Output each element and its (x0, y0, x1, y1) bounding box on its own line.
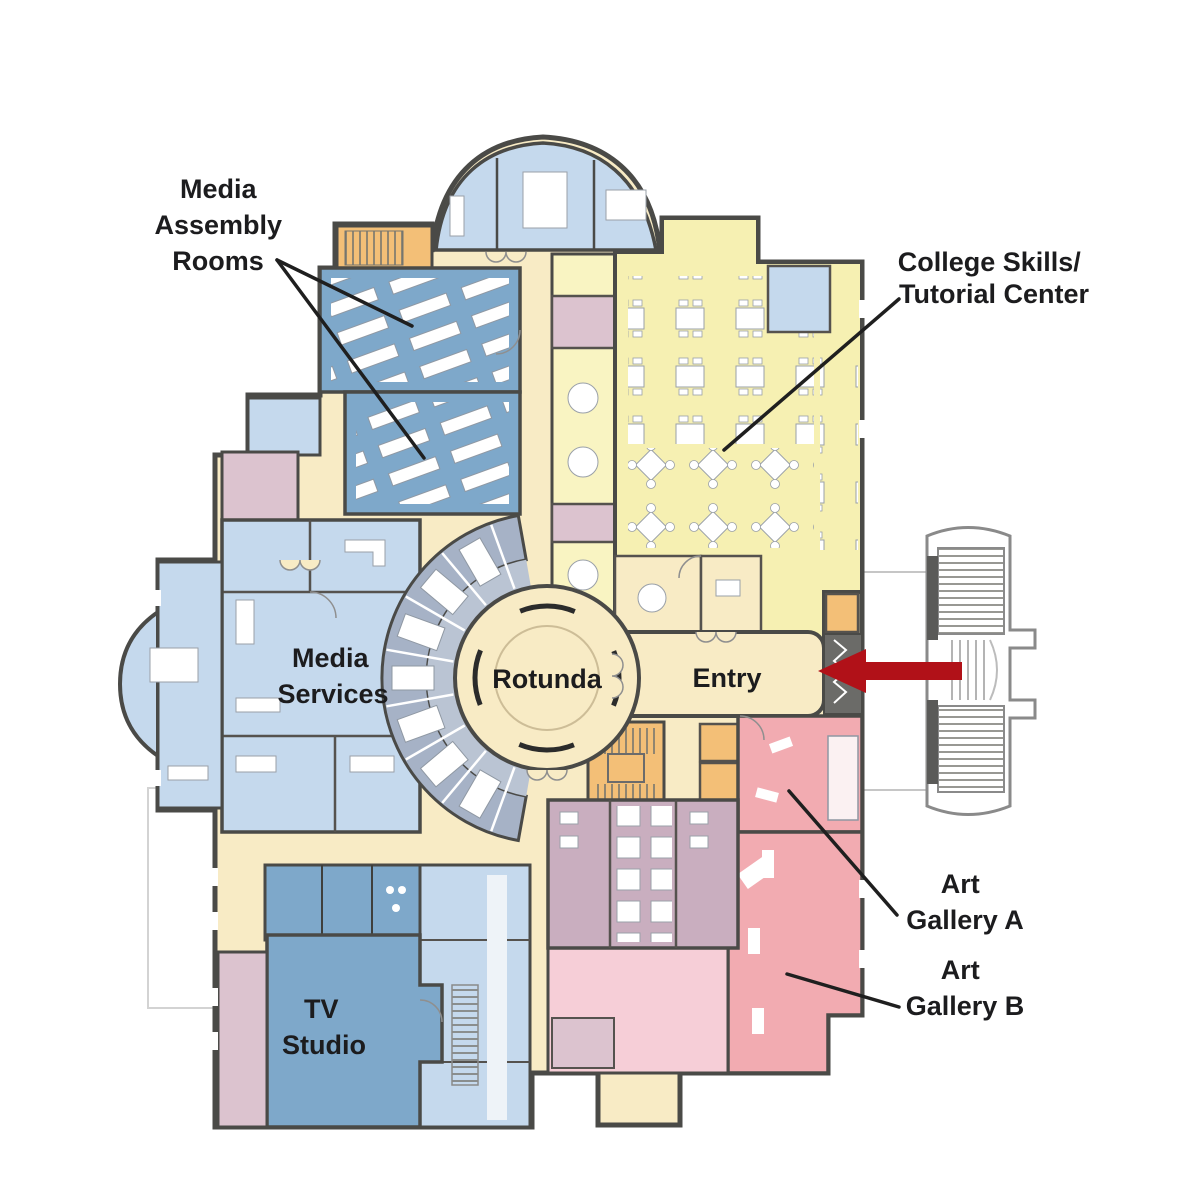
stairwell-top-left-treads (345, 231, 403, 265)
elevator-college-skills (826, 594, 858, 632)
gallery-a-prep-room (828, 736, 858, 820)
label-entry: Entry (692, 663, 761, 693)
lounge-table (638, 584, 666, 612)
room-mauve-upper-left (222, 452, 298, 520)
bay-window-room-bump (120, 612, 158, 756)
room-college-skills-office (768, 266, 830, 332)
stairwell-central-treads-bottom (596, 784, 656, 800)
tv-offices-stair (452, 985, 478, 1085)
room-bottom-left-mauve (218, 952, 267, 1127)
room-seminar-mauve-2 (552, 504, 615, 542)
room-small-office-left (248, 398, 320, 455)
media-assembly-lower-tables (356, 402, 509, 504)
stair-flight-upper (938, 548, 1004, 634)
tv-offices-corridor (487, 875, 507, 1120)
stair-flight-lower (938, 706, 1004, 792)
college-skills-tables-lower (628, 448, 814, 548)
room-tv-control (265, 865, 420, 940)
floor-plan: Media Assembly Rooms College Skills/ Tut… (0, 0, 1200, 1200)
label-college-skills-tutorial-center: College Skills/ Tutorial Center (898, 247, 1090, 309)
elevator-2 (700, 763, 738, 800)
room-gallery-storage (552, 1018, 614, 1068)
floor-plan-svg: Media Assembly Rooms College Skills/ Tut… (0, 0, 1200, 1200)
lounge-desk (716, 580, 740, 596)
college-skills-tables-right (820, 340, 858, 550)
stair-wall-upper (927, 556, 938, 640)
stair-connector-lines (864, 572, 927, 790)
label-art-gallery-b: Art Gallery B (906, 955, 1025, 1021)
stair-wall-lower (927, 700, 938, 784)
room-seminar-mauve-1 (552, 296, 615, 348)
restroom-stalls (614, 806, 672, 942)
elevator-1 (700, 724, 738, 761)
label-media-assembly-rooms: Media Assembly Rooms (154, 174, 289, 276)
room-college-skills-lounge-2 (701, 556, 761, 640)
label-rotunda: Rotunda (492, 664, 602, 694)
label-art-gallery-a: Art Gallery A (906, 869, 1024, 935)
